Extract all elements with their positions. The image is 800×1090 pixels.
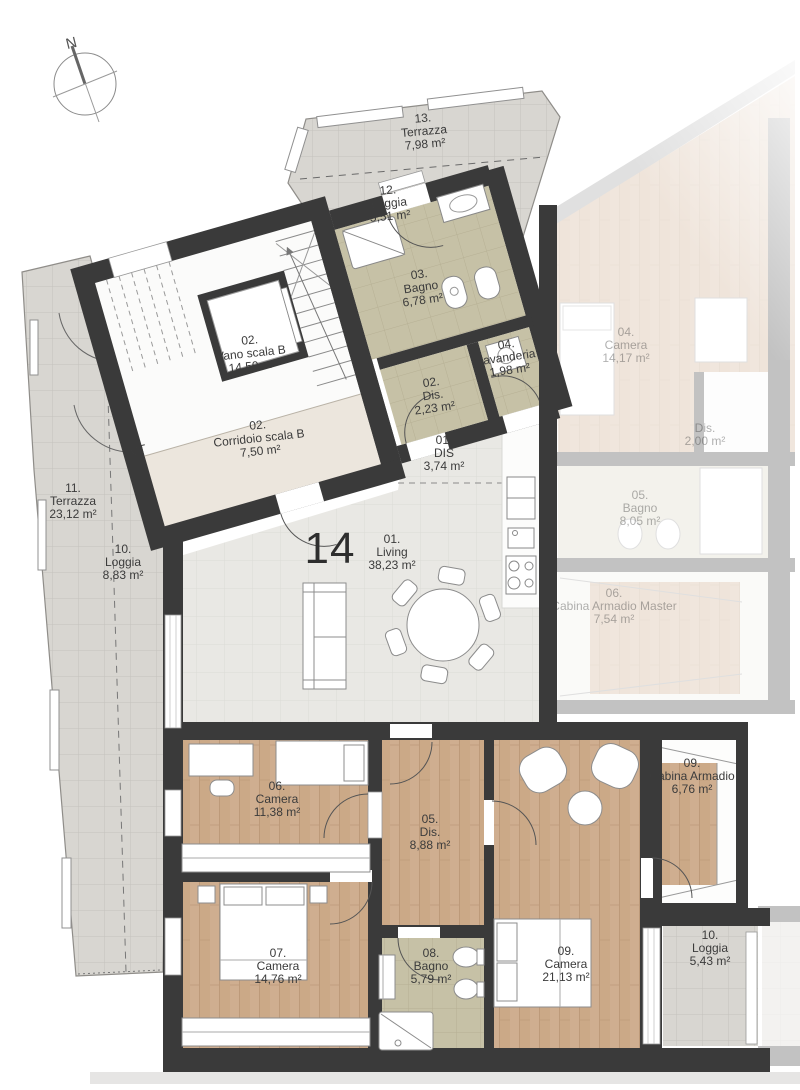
adjacent-label-cabina-master-06: 06.Cabina Armadio Master7,54 m² bbox=[551, 587, 676, 626]
bidet bbox=[454, 979, 478, 999]
room-label-bagno-03: 03.Bagno6,78 m² bbox=[398, 265, 444, 309]
room-label-loggia-10-right: 10.Loggia5,43 m² bbox=[690, 929, 731, 968]
room-label-loggia-12: 12.Loggia5,51 m² bbox=[367, 182, 411, 224]
room-label-camera-06: 06.Camera11,38 m² bbox=[254, 780, 300, 819]
kitchen-sink bbox=[508, 528, 534, 548]
toilet bbox=[453, 947, 479, 967]
adjacent-label-dis: Dis.2,00 m² bbox=[685, 422, 726, 448]
ground-strip bbox=[90, 1072, 800, 1084]
room-label-camera-09: 09.Camera21,13 m² bbox=[542, 945, 589, 984]
room-label-terrazza-13: 13.Terrazza7,98 m² bbox=[399, 110, 448, 153]
sofa bbox=[303, 583, 346, 689]
compass-icon bbox=[53, 46, 117, 122]
room-label-camera-07: 07.Camera14,76 m² bbox=[254, 947, 301, 986]
room-label-dis-05: 05.Dis.8,88 m² bbox=[410, 813, 451, 852]
nightstand bbox=[310, 886, 327, 903]
desk bbox=[189, 744, 253, 776]
room-label-cabina-armadio-09: 09.Cabina Armadio6,76 m² bbox=[649, 757, 734, 796]
desk-chair bbox=[210, 780, 234, 796]
vt-label: VT bbox=[128, 442, 147, 459]
room-label-lavanderia-04: 04.lavanderia1,98 m² bbox=[478, 334, 538, 380]
room-label-bagno-08: 08.Bagno5,79 m² bbox=[411, 947, 452, 986]
room-label-terrazza-11: 11.Terrazza23,12 m² bbox=[49, 482, 96, 521]
adjacent-label-bagno-05: 05.Bagno8,05 m² bbox=[620, 489, 661, 528]
room-label-dis-02: 02.Dis.2,23 m² bbox=[410, 373, 456, 417]
room-label-dis-01: 01.DIS3,74 m² bbox=[424, 434, 465, 473]
room-label-living-01: 01.Living38,23 m² bbox=[368, 533, 415, 572]
room-label-loggia-10-left: 10.Loggia8,83 m² bbox=[103, 543, 144, 582]
floor-plan-page: N 14 VT 13.Terrazza7,98 m² 12.Loggia5,51… bbox=[0, 0, 800, 1090]
side-table bbox=[568, 791, 602, 825]
room-label-vano-scala: 02.Vano scala B14,50 m² bbox=[214, 330, 288, 376]
fade-overlay bbox=[540, 0, 800, 360]
sink bbox=[379, 955, 395, 999]
apartment-number: 14 bbox=[305, 527, 356, 571]
adjacent-label-camera-04: 04.Camera14,17 m² bbox=[602, 326, 649, 365]
nightstand bbox=[198, 886, 215, 903]
